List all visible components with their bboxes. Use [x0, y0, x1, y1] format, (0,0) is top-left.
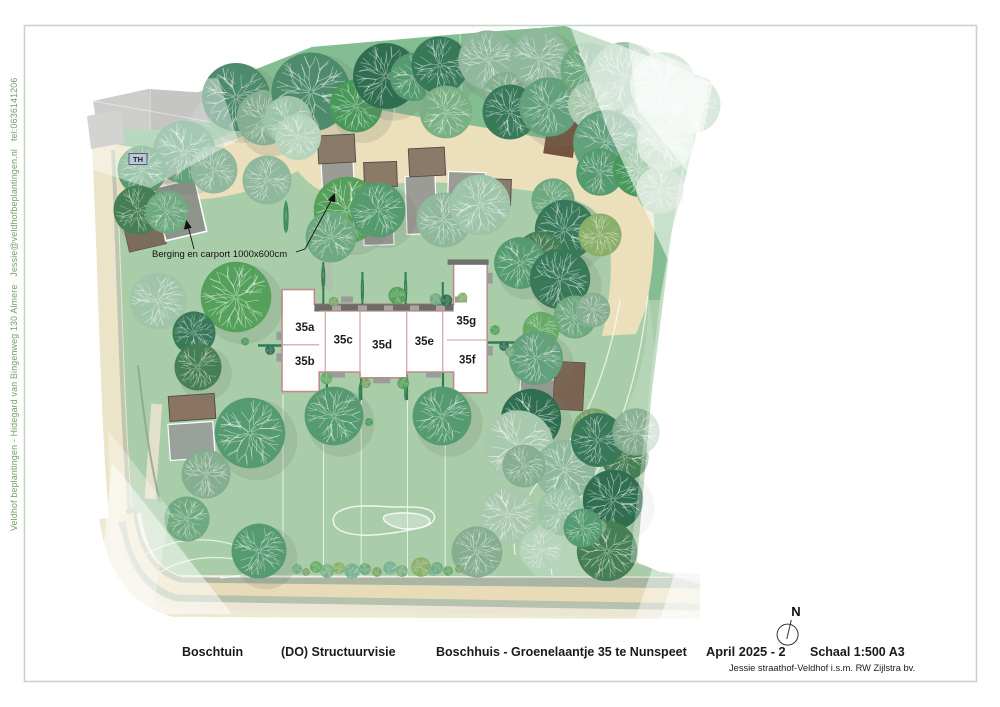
svg-text:Veldhof beplantingen - Hidegar: Veldhof beplantingen - Hidegard van Bing… [9, 78, 19, 531]
svg-text:(DO) Structuurvisie: (DO) Structuurvisie [281, 645, 396, 659]
svg-text:Berging en carport 1000x600cm: Berging en carport 1000x600cm [152, 249, 287, 260]
svg-text:35d: 35d [372, 339, 392, 351]
svg-text:April 2025 - 2: April 2025 - 2 [706, 644, 786, 659]
svg-text:Schaal 1:500 A3: Schaal 1:500 A3 [810, 645, 905, 659]
svg-text:35f: 35f [459, 354, 476, 366]
svg-text:TH: TH [133, 155, 143, 164]
svg-text:35g: 35g [456, 316, 476, 328]
svg-text:35b: 35b [295, 356, 315, 368]
svg-text:Boschtuin: Boschtuin [182, 645, 243, 659]
svg-text:Boschhuis - Groenelaantje 35 t: Boschhuis - Groenelaantje 35 te Nunspeet [436, 645, 688, 659]
svg-text:35a: 35a [295, 322, 315, 334]
svg-text:35e: 35e [415, 336, 434, 348]
svg-text:35c: 35c [334, 335, 354, 347]
svg-text:N: N [791, 604, 800, 619]
svg-text:Jessie straathof-Veldhof i.s.m: Jessie straathof-Veldhof i.s.m. RW Zijls… [729, 663, 915, 673]
